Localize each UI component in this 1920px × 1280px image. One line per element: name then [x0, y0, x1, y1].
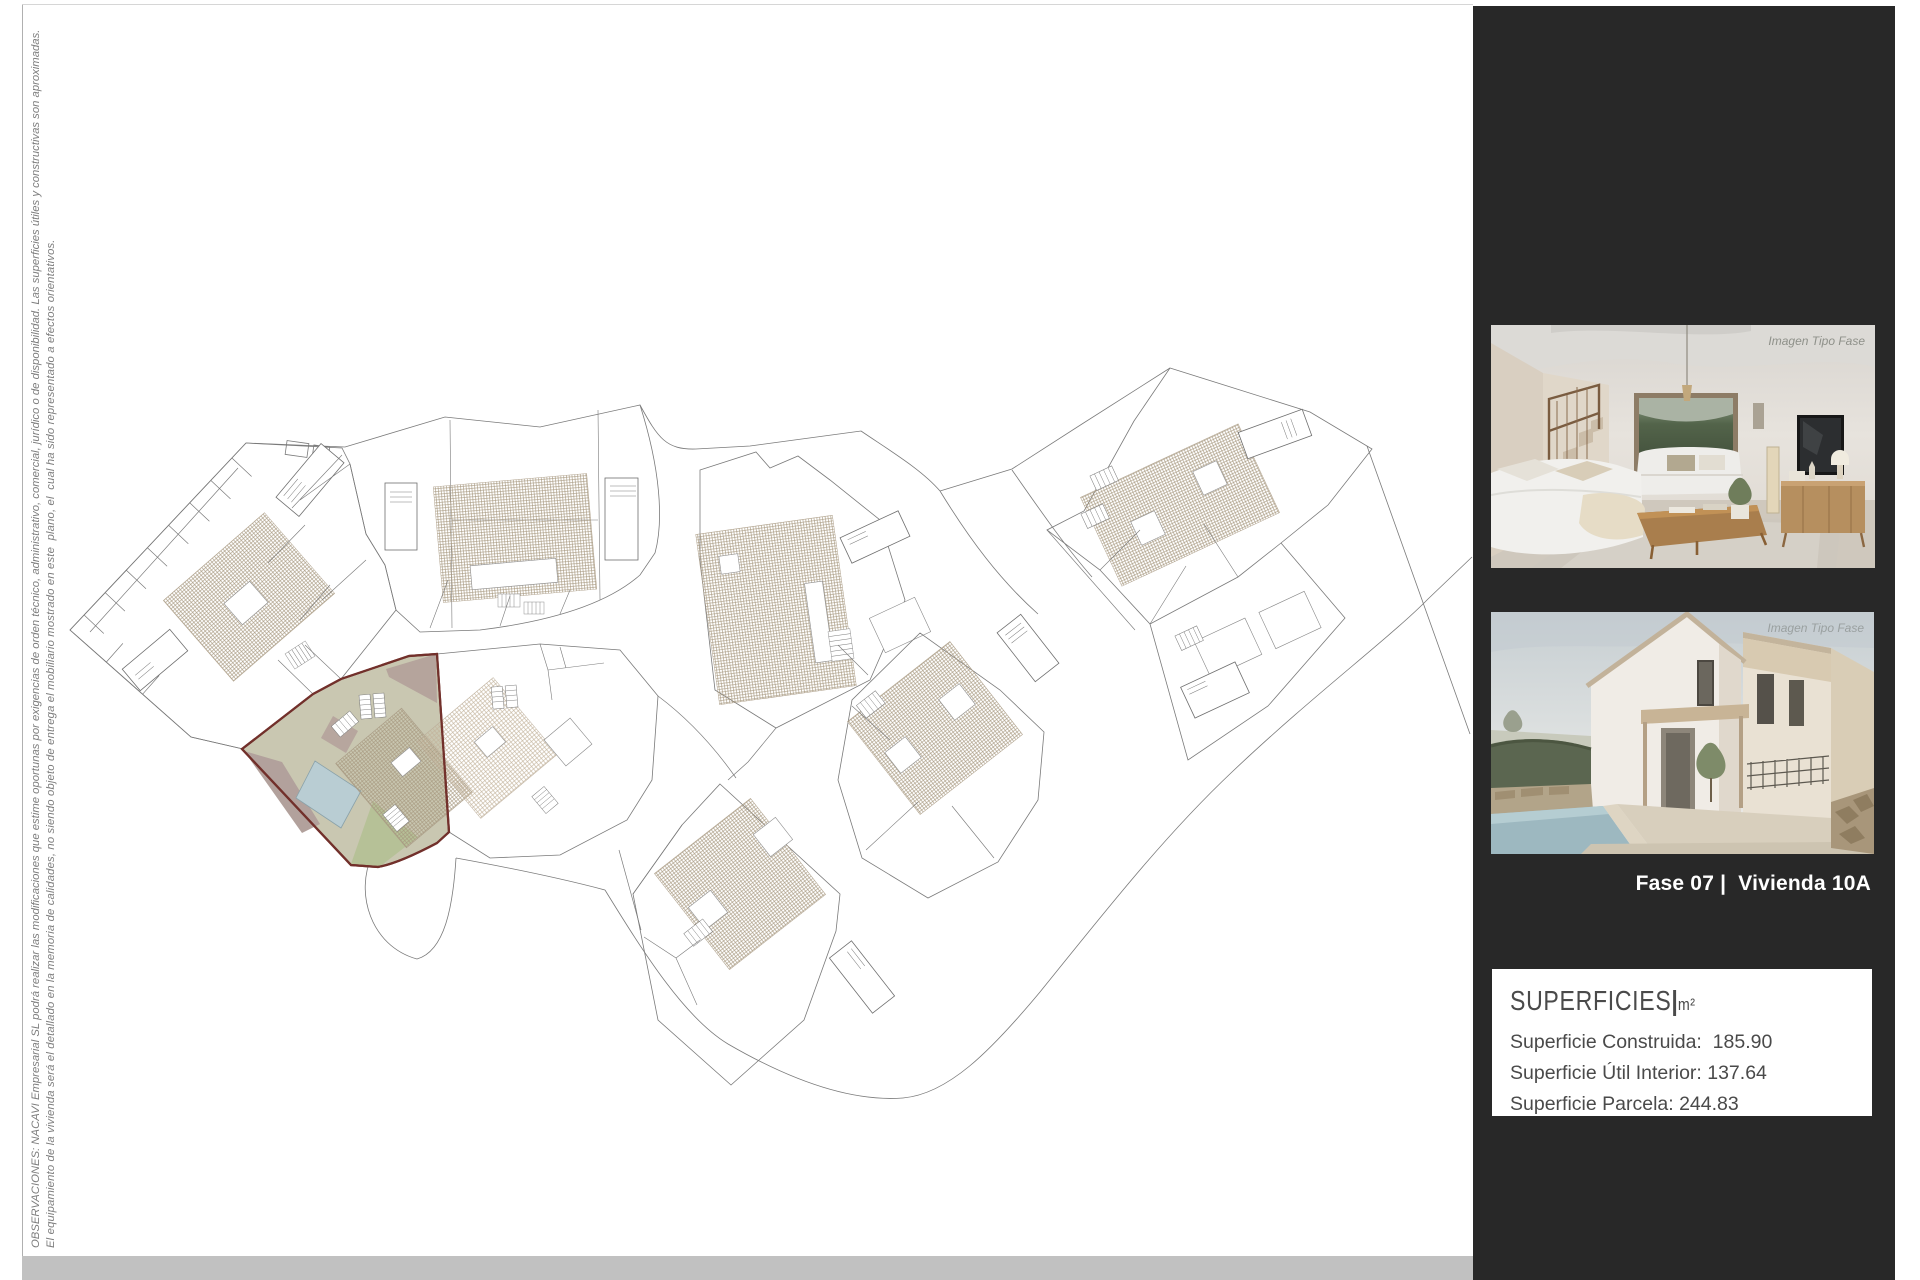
svg-text:Imagen Tipo Fase: Imagen Tipo Fase: [1767, 621, 1864, 635]
svg-text:Imagen Tipo Fase: Imagen Tipo Fase: [1768, 334, 1865, 348]
